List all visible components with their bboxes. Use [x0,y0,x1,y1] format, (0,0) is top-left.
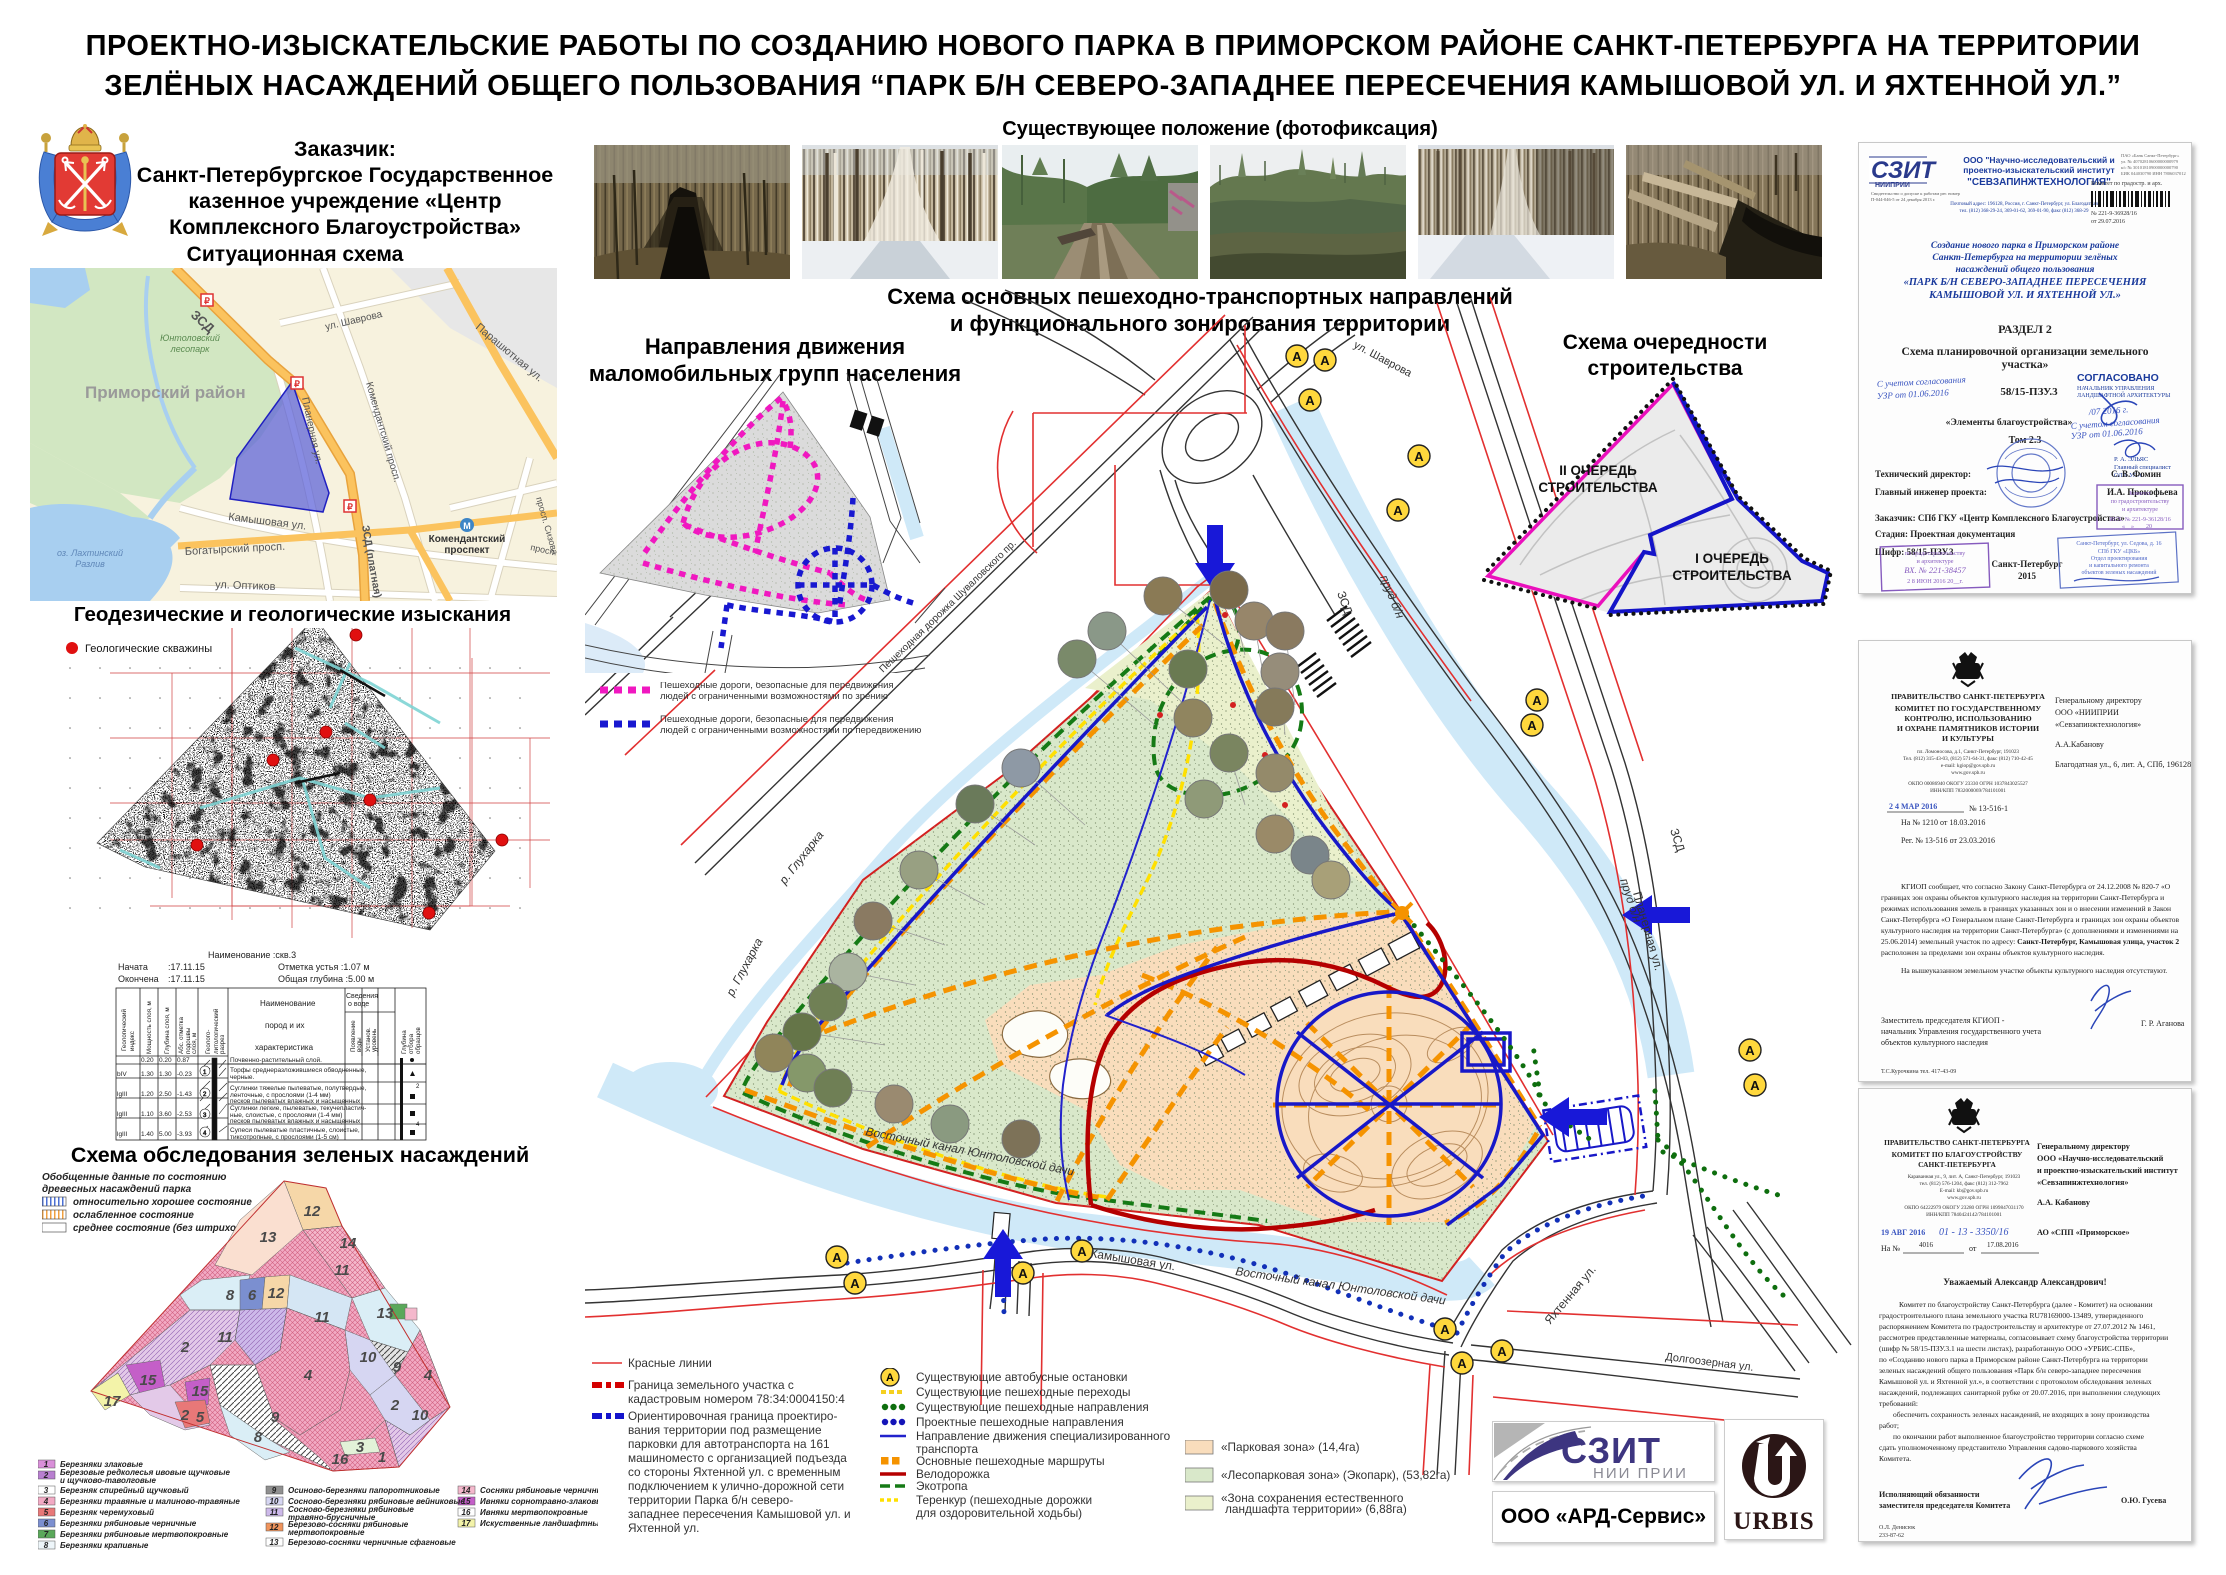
svg-text:А: А [832,1250,842,1265]
svg-text:Красные линии: Красные линии [628,1356,712,1370]
svg-text:А.А.Кабанову: А.А.Кабанову [2055,740,2105,749]
svg-text:А.А. Кабанову: А.А. Кабанову [2037,1198,2091,1207]
svg-text:9: 9 [393,1359,402,1376]
svg-text:Г. Р. Аганова: Г. Р. Аганова [2141,1019,2185,1028]
svg-text:Схема планировочной организаци: Схема планировочной организации земельно… [1902,346,2149,358]
svg-text:А: А [1457,1356,1467,1371]
svg-text:западнее пересечения Камышовой: западнее пересечения Камышовой ул. и [628,1507,851,1521]
svg-text:Санкт-Петербург, ул. Седова, д: Санкт-Петербург, ул. Седова, д. 16 [2076,540,2161,547]
svg-text:парковки для автотранспорта на: парковки для автотранспорта на 161 [628,1437,830,1451]
svg-text:А: А [1018,1266,1028,1281]
svg-text:Березняки рябиновые черничные: Березняки рябиновые черничные [60,1519,197,1528]
svg-text:«ПАРК Б/Н СЕВЕРО-ЗАПАДНЕЕ ПЕРЕ: «ПАРК Б/Н СЕВЕРО-ЗАПАДНЕЕ ПЕРЕСЕЧЕНИЯ [1904,277,2147,288]
svg-text:сдать уполномоченному представ: сдать уполномоченному представителю Упра… [1879,1443,2137,1452]
svg-text:и архитектуре: и архитектуре [1916,558,1953,565]
svg-text:На №: На № [1881,1244,1900,1253]
svg-text:проспект: проспект [444,545,489,556]
svg-text:8: 8 [254,1429,263,1446]
svg-text:пород и их: пород и их [265,1021,305,1030]
svg-text:Тел. (812) 315-43-03, (812) 57: Тел. (812) 315-43-03, (812) 571-64-31, ф… [1903,755,2033,762]
svg-text:заместителя председателя Комит: заместителя председателя Комитета [1879,1501,2010,1510]
svg-text:Проектные пешеходные направлен: Проектные пешеходные направления [916,1415,1124,1429]
svg-text:14: 14 [462,1486,471,1495]
svg-text:зеленых насаждений общего поль: зеленых насаждений общего пользования «П… [1879,1366,2142,1375]
svg-text:www.gov.spb.ru: www.gov.spb.ru [1947,1195,1981,1201]
svg-text:2: 2 [390,1397,400,1414]
svg-text:кадастровым номером 78:34:0004: кадастровым номером 78:34:0004150:4 [628,1392,845,1406]
svg-text:подключением к улично-дорожной: подключением к улично-дорожной сети [628,1479,844,1493]
svg-text:«Парковая зона» (14,4га): «Парковая зона» (14,4га) [1221,1440,1360,1454]
svg-text:Березняки травяные и малиново-: Березняки травяные и малиново-травяные [60,1497,240,1506]
svg-text:₽: ₽ [294,379,300,389]
svg-text:17: 17 [462,1519,471,1528]
svg-text:12: 12 [268,1285,285,1302]
svg-text:Существующие пешеходные перехо: Существующие пешеходные переходы [916,1385,1130,1399]
svg-text:Стадия: Проектная документаци: Стадия: Проектная документация [1875,529,2015,539]
svg-text:-1.43: -1.43 [177,1091,192,1098]
svg-text:13: 13 [270,1538,279,1547]
svg-text:к/с № 30101810900000000790: к/с № 30101810900000000790 [2121,165,2179,170]
svg-text:от: от [1969,1244,1977,1253]
svg-text:Супеси пылеватые пластичные, с: Супеси пылеватые пластичные, слоистые, [230,1127,360,1134]
svg-text:требований:: требований: [1879,1399,1918,1408]
svg-text:машиноместо с организацией под: машиноместо с организацией подъезда [628,1451,847,1465]
svg-text:01 - 13 - 3350/16: 01 - 13 - 3350/16 [1939,1227,2008,1238]
svg-text:6: 6 [44,1519,49,1528]
svg-text:Юнтоловский: Юнтоловский [160,333,220,343]
svg-text:Ивняки сорнотравно-злаковые: Ивняки сорнотравно-злаковые [480,1497,598,1506]
svg-text:Березово-сосняки черничные сфа: Березово-сосняки черничные сфагновые [288,1538,456,1547]
svg-text:и проектно-изыскательский инст: и проектно-изыскательский институт [2037,1166,2178,1175]
svg-text:E-mail: kb@gov.spb.ru: E-mail: kb@gov.spb.ru [1940,1188,1989,1194]
svg-text:Березняк черемуховый: Березняк черемуховый [60,1508,154,1517]
svg-text:по окончании работ выполненное: по окончании работ выполненное благоустр… [1893,1432,2145,1441]
svg-text:3.60: 3.60 [159,1111,172,1118]
svg-text:11: 11 [314,1309,330,1326]
svg-text:КОМИТЕТ ПО БЛАГОУСТРОЙСТВУ: КОМИТЕТ ПО БЛАГОУСТРОЙСТВУ [1892,1150,2023,1159]
svg-text::17.11.15: :17.11.15 [168,974,205,984]
svg-text:1.10: 1.10 [141,1111,154,1118]
svg-text:и архитектуре: и архитектуре [2122,507,2158,513]
svg-text:Мощность слоя, м: Мощность слоя, м [146,1001,153,1054]
svg-text:ИНН/КПП 7840424142/784101001: ИНН/КПП 7840424142/784101001 [1926,1212,2002,1218]
svg-text:0.20: 0.20 [141,1057,154,1064]
svg-text::17.11.15: :17.11.15 [168,962,205,972]
svg-text:Сведения: Сведения [346,993,378,1000]
svg-text:1: 1 [44,1460,49,1469]
svg-text:ИНН/КПП 7832000069/784101001: ИНН/КПП 7832000069/784101001 [1930,788,2006,794]
svg-text:Глубина слоя, м: Глубина слоя, м [164,1007,171,1054]
svg-text:4: 4 [423,1367,433,1384]
svg-text:Почтовый адрес: 196128, Россия: Почтовый адрес: 196128, Россия, г. Санкт… [1950,202,2098,207]
svg-text:Существующие автобусные остано: Существующие автобусные остановки [916,1370,1128,1384]
svg-text:Генеральному директору: Генеральному директору [2037,1142,2131,1151]
svg-text:Камышовой ул. и Яхтенной ул.»,: Камышовой ул. и Яхтенной ул.», в соответ… [1879,1377,2152,1386]
svg-text:индекс: индекс [129,1031,136,1051]
svg-text:11: 11 [217,1329,233,1346]
svg-text:НИИ ПРИИ: НИИ ПРИИ [1593,1465,1688,1481]
svg-text:и щучково-таволговые: и щучково-таволговые [60,1476,157,1485]
svg-text:На вышеуказанном земельном уча: На вышеуказанном земельном участке объек… [1901,966,2167,975]
svg-text:Ивняки мертвопокровные: Ивняки мертвопокровные [480,1508,588,1517]
svg-text:233-87-62: 233-87-62 [1879,1533,1904,1539]
svg-text:17: 17 [104,1393,121,1410]
svg-text:О.Ю. Гусева: О.Ю. Гусева [2121,1496,2166,1505]
svg-text:Комитет по градостр. и арх.: Комитет по градостр. и арх. [2091,181,2163,187]
svg-text:Пешеходные дороги, безопасные: Пешеходные дороги, безопасные для передв… [660,714,894,725]
svg-text:САНКТ-ПЕТЕРБУРГА: САНКТ-ПЕТЕРБУРГА [1918,1160,1996,1169]
svg-text:ОКПО 64222979 ОКОГУ 23280 ОГ: ОКПО 64222979 ОКОГУ 23280 ОГРН 109984703… [1904,1205,2024,1211]
svg-text:О.Л. Денисюк: О.Л. Денисюк [1879,1525,1915,1531]
svg-text:Геологические скважины: Геологические скважины [85,643,212,655]
svg-text:песков пылеватых влажных и нас: песков пылеватых влажных и насыщенных [230,1118,361,1125]
svg-text:www.gov.spb.ru: www.gov.spb.ru [1951,770,1985,776]
svg-text:Почвенно-растительный слой.: Почвенно-растительный слой. [230,1056,322,1064]
svg-text:15: 15 [140,1372,157,1389]
svg-text:вания территории под размещени: вания территории под размещение [628,1423,822,1437]
svg-text:2: 2 [180,1407,190,1424]
svg-text:2 8 ИЮН 2016 20__г.: 2 8 ИЮН 2016 20__г. [1907,578,1963,585]
svg-text:Свидетельство о допуске к рабо: Свидетельство о допуске к работам рег. н… [1871,191,1961,196]
svg-text:КОМИТЕТ ПО ГОСУДАРСТВЕННОМУ: КОМИТЕТ ПО ГОСУДАРСТВЕННОМУ [1895,704,2042,713]
svg-text:10: 10 [360,1349,377,1366]
svg-text:р. Глухарка: р. Глухарка [776,828,827,888]
svg-text:воды: воды [356,1037,363,1052]
svg-text:-3.93: -3.93 [177,1131,192,1138]
svg-text:«Севзапинжтехнология»: «Севзапинжтехнология» [2037,1178,2128,1187]
svg-text:₽: ₽ [204,296,210,306]
svg-text:распоряжением Комитета по град: распоряжением Комитета по градостроитель… [1879,1322,2155,1331]
svg-text:Ориентировочная граница проект: Ориентировочная граница проектиро- [628,1409,837,1423]
svg-text:КГИОП сообщает, что согласно З: КГИОП сообщает, что согласно Закону Санк… [1901,882,2171,891]
svg-text:«__» ___ 20__: «__» ___ 20__ [2122,524,2159,530]
svg-text:«Элементы благоустройства»: «Элементы благоустройства» [1946,417,2073,428]
svg-text:и капитального ремонта: и капитального ремонта [2089,563,2149,569]
svg-text:ИСХ. № 221-9-36128/16: ИСХ. № 221-9-36128/16 [2109,517,2170,523]
svg-text:Рег. № 13-516 от 23.03.2016: Рег. № 13-516 от 23.03.2016 [1901,836,1995,845]
svg-text:Главный инженер проекта:: Главный инженер проекта: [1875,487,1987,497]
svg-text:С. В. Фомин: С. В. Фомин [2111,469,2161,479]
svg-text:оз. Лахтинский: оз. Лахтинский [57,548,123,558]
svg-text:Создание нового парка в Примор: Создание нового парка в Приморском район… [1931,240,2120,251]
svg-text:Искуственные ландшафтные полян: Искуственные ландшафтные поляны [480,1519,598,1528]
svg-text:12: 12 [304,1203,321,1220]
svg-text:3: 3 [356,1439,365,1456]
svg-text:"СЕВЗАПИНЖТЕХНОЛОГИЯ": "СЕВЗАПИНЖТЕХНОЛОГИЯ" [1967,177,2111,188]
svg-text:Заказчик: СПб ГКУ «Центр Комп: Заказчик: СПб ГКУ «Центр Комплексного Бл… [1875,513,2125,523]
svg-text:мертвопокровные: мертвопокровные [288,1528,365,1537]
svg-text:Направление движения специализ: Направление движения специализированного [916,1429,1171,1443]
svg-text:Технический директор:: Технический директор: [1875,469,1971,479]
svg-text:Наименование: Наименование [260,999,316,1008]
svg-text:2: 2 [180,1339,190,1356]
svg-text:объектов зеленых насаждений: объектов зеленых насаждений [2082,569,2157,576]
svg-text:А: А [1745,1043,1755,1058]
svg-text:/07 2016 г.: /07 2016 г. [2087,404,2128,417]
svg-text:0.20: 0.20 [159,1057,172,1064]
svg-text:3: 3 [44,1486,49,1495]
svg-text:А: А [1292,349,1302,364]
svg-text:проектно-изыскательский инстит: проектно-изыскательский институт [1963,165,2114,175]
svg-text:11: 11 [270,1508,279,1517]
svg-text:2: 2 [43,1471,49,1480]
svg-text:2.50: 2.50 [159,1091,172,1098]
svg-text:СТРОИТЕЛЬСТВА: СТРОИТЕЛЬСТВА [1538,480,1658,495]
svg-text:АО «СПП «Приморское»: АО «СПП «Приморское» [2037,1228,2130,1237]
svg-text:А: А [1320,353,1330,368]
svg-text:Разлив: Разлив [75,559,105,569]
svg-text:Отдел проектирования: Отдел проектирования [2091,556,2148,562]
svg-text:Березняк спирейный щучковый: Березняк спирейный щучковый [60,1486,189,1495]
svg-text:режимах использования земель в: режимах использования земель в границах … [1881,904,2171,913]
svg-text:10: 10 [270,1497,279,1506]
svg-text:Абс. отметка: Абс. отметка [178,1017,185,1054]
svg-text:Граница земельного участка с: Граница земельного участка с [628,1378,794,1392]
svg-text:13: 13 [260,1229,277,1246]
svg-text:19 АВГ 2016: 19 АВГ 2016 [1881,1228,1925,1237]
svg-text:Пешеходные дороги, безопасные: Пешеходные дороги, безопасные для передв… [660,682,894,691]
svg-text:14: 14 [340,1235,357,1252]
svg-text:Существующие пешеходные направ: Существующие пешеходные направления [916,1400,1149,1414]
svg-text:А: А [1750,1078,1760,1093]
svg-text:Караванная ул., 9, лит. А, Сан: Караванная ул., 9, лит. А, Санкт-Петербу… [1908,1173,2021,1180]
svg-text:пл. Ломоносова, д.1, Санкт-Пет: пл. Ломоносова, д.1, Санкт-Петербург, 19… [1917,748,2019,755]
svg-text:5: 5 [44,1508,49,1517]
svg-text:территории Парка б/н северо-: территории Парка б/н северо- [628,1493,793,1507]
svg-text:от 29.07.2016: от 29.07.2016 [2091,219,2125,225]
svg-text:8: 8 [226,1287,235,1304]
svg-text:А: А [1305,393,1315,408]
svg-text:Санкт-Петербург: Санкт-Петербург [1992,559,2063,569]
svg-text:5.00: 5.00 [159,1131,172,1138]
svg-text:«Лесопарковая зона» (Экопарк),: «Лесопарковая зона» (Экопарк), (53,82га) [1221,1468,1450,1482]
svg-text:Основные пешеходные маршруты: Основные пешеходные маршруты [916,1454,1105,1468]
svg-text:4: 4 [416,1122,420,1128]
svg-text:А: А [1393,503,1403,518]
svg-text:по градостроительству: по градостроительству [2111,499,2170,505]
svg-text:РАЗДЕЛ 2: РАЗДЕЛ 2 [1998,322,2052,336]
svg-text:Сосняки рябиновые черничные: Сосняки рябиновые черничные [480,1486,598,1495]
svg-text:6: 6 [248,1287,257,1304]
svg-text:13: 13 [377,1305,394,1322]
svg-text:Глубина: Глубина [401,1030,408,1054]
svg-text:участка»: участка» [2002,359,2049,371]
svg-text:насаждений общего пользования: насаждений общего пользования [1956,264,2095,275]
svg-text:р. Глухарка: р. Глухарка [723,935,766,999]
svg-text:9: 9 [271,1409,280,1426]
svg-text:ООО «НИИПРИИ: ООО «НИИПРИИ [2055,708,2119,717]
svg-text:ПРАВИТЕЛЬСТВО САНКТ-ПЕТЕРБУРГА: ПРАВИТЕЛЬСТВО САНКТ-ПЕТЕРБУРГА [1884,1138,2030,1147]
svg-text:Геологический: Геологический [121,1009,128,1051]
svg-text:17.08.2016: 17.08.2016 [1987,1241,2019,1249]
svg-text:А: А [1077,1244,1087,1259]
svg-text:25.06.2014) земельный участок: 25.06.2014) земельный участок по адресу:… [1881,937,2179,946]
svg-text:lgIII: lgIII [117,1111,128,1118]
svg-text:Окончена: Окончена [118,974,159,984]
svg-text:И ОХРАНЕ ПАМЯТНИКОВ ИСТОРИИ: И ОХРАНЕ ПАМЯТНИКОВ ИСТОРИИ [1897,724,2039,733]
svg-text:по градостроительству: по градостроительству [1905,550,1966,557]
svg-text:лесопарк: лесопарк [170,344,210,354]
svg-text:5: 5 [196,1409,205,1426]
svg-text:разрез: разрез [219,1035,226,1054]
svg-text:НАЧАЛЬНИК УПРАВЛЕНИЯ: НАЧАЛЬНИК УПРАВЛЕНИЯ [2077,386,2154,392]
svg-text:Комитета.: Комитета. [1879,1454,1911,1463]
svg-text:lgIII: lgIII [117,1131,128,1138]
svg-text:тиксотропные, с прослоями (1-5: тиксотропные, с прослоями (1-5 см) [230,1134,339,1141]
svg-text:ландшафта территории» (6,88га): ландшафта территории» (6,88га) [1225,1502,1407,1516]
svg-text:песков пылеватых влажных и нас: песков пылеватых влажных и насыщенных [230,1098,361,1105]
svg-text:12: 12 [270,1523,279,1532]
svg-text:«Севзапинжтехнология»: «Севзапинжтехнология» [2055,720,2141,729]
svg-text:А: А [1527,718,1537,733]
svg-text:Яхтенной ул.: Яхтенной ул. [628,1521,699,1535]
svg-text:людей с ограниченными возможно: людей с ограниченными возможностями по з… [660,691,888,702]
svg-text:II ОЧЕРЕДЬ: II ОЧЕРЕДЬ [1559,463,1637,478]
svg-text:А: А [1414,449,1424,464]
svg-text:Суглинки тяжелые пылеватые, по: Суглинки тяжелые пылеватые, полутвердые, [230,1085,366,1092]
svg-text:БИК 044030790 ИНН 7806037012: БИК 044030790 ИНН 7806037012 [2121,171,2186,176]
svg-text:ПРАВИТЕЛЬСТВО САНКТ-ПЕТЕРБУРГА: ПРАВИТЕЛЬСТВО САНКТ-ПЕТЕРБУРГА [1891,692,2045,701]
svg-text:-0.23: -0.23 [177,1071,192,1078]
svg-text:Геолого-: Геолого- [205,1030,212,1054]
svg-text:со стороны Яхтенной ул. с врем: со стороны Яхтенной ул. с временным [628,1465,841,1479]
svg-text:Уважаемый Александр Александро: Уважаемый Александр Александрович! [1943,1277,2106,1287]
svg-text:2015: 2015 [2018,571,2037,581]
svg-text:I ОЧЕРЕДЬ: I ОЧЕРЕДЬ [1695,551,1769,566]
svg-text:отбора: отбора [408,1033,415,1054]
svg-text:объектов культурного наследия: объектов культурного наследия [1881,1038,1988,1047]
svg-text:Санкт-Петербурга «О Генерально: Санкт-Петербурга «О Генеральном плане Са… [1881,915,2179,924]
svg-text:№ 221-9-36928/16: № 221-9-36928/16 [2091,211,2137,217]
svg-text:А: А [886,1372,894,1384]
svg-text:4: 4 [303,1367,313,1384]
svg-text:КАМЫШОВОЙ УЛ. И ЯХТЕННОЙ УЛ.»: КАМЫШОВОЙ УЛ. И ЯХТЕННОЙ УЛ.» [1928,289,2121,301]
svg-text:2: 2 [416,1084,420,1090]
svg-text:Комитет: Комитет [2129,491,2151,497]
svg-text:4: 4 [43,1497,49,1506]
svg-text:ООО «Научно-исследовательский: ООО «Научно-исследовательский [2037,1154,2164,1163]
svg-text:Отметка устья :1.07 м: Отметка устья :1.07 м [278,962,370,972]
svg-text:ул. № 40702810600000000979: ул. № 40702810600000000979 [2121,159,2179,164]
svg-text:черные.: черные. [230,1074,254,1081]
svg-text:bIV: bIV [117,1071,127,1078]
svg-text:людей с ограниченными возможно: людей с ограниченными возможностями по п… [660,725,921,736]
svg-text:-2.53: -2.53 [177,1111,192,1118]
svg-text:8: 8 [44,1541,49,1550]
svg-text:уровень: уровень [371,1029,378,1052]
svg-text:1.30: 1.30 [159,1071,172,1078]
svg-text:слоя, м: слоя, м [191,1033,198,1054]
svg-text:1.30: 1.30 [141,1071,154,1078]
svg-text:А: А [1497,1344,1507,1359]
svg-text:тел. (812) 576-1204, факс (812: тел. (812) 576-1204, факс (812) 312-7962 [1920,1180,2009,1187]
svg-text:расположен за пределами зон ох: расположен за пределами зон охраны объек… [1881,948,2105,957]
svg-text:Общая глубина :5.00 м: Общая глубина :5.00 м [278,974,374,984]
svg-text:ВХ. № 221-38457: ВХ. № 221-38457 [1904,565,1966,575]
svg-text:А: А [1440,1322,1450,1337]
svg-text:Приморский район: Приморский район [85,383,246,402]
svg-text:ЛАНДШАФТНОЙ АРХИТЕКТУРЫ: ЛАНДШАФТНОЙ АРХИТЕКТУРЫ [2077,391,2171,399]
svg-text:Комендантский: Комендантский [429,534,506,545]
svg-text:1.20: 1.20 [141,1091,154,1098]
svg-text:начальник Управления государст: начальник Управления государственного уч… [1881,1027,2041,1036]
svg-text:ул. Шаврова: ул. Шаврова [1352,339,1415,380]
svg-text:58/15-ПЗУ.3: 58/15-ПЗУ.3 [2000,386,2058,398]
svg-text:Наименование :скв.3: Наименование :скв.3 [208,950,296,960]
svg-text:4016: 4016 [1919,1241,1934,1249]
svg-text:₽: ₽ [347,502,353,512]
svg-text:Р. А. ЭЛЬЯС: Р. А. ЭЛЬЯС [2114,456,2148,463]
svg-text:А: А [1532,693,1542,708]
svg-text:16: 16 [462,1508,471,1517]
svg-text:обеспечить сохранность зеленых: обеспечить сохранность зеленых насаждени… [1893,1410,2150,1419]
svg-text:насаждений, подлежащих санитар: насаждений, подлежащих санитарной рубке … [1879,1388,2161,1397]
svg-text:образцов: образцов [415,1026,422,1054]
svg-text:работ;: работ; [1879,1421,1899,1430]
svg-text:1.40: 1.40 [141,1131,154,1138]
svg-text:Торфы среднеразложившиеся обво: Торфы среднеразложившиеся обводненные, [230,1066,366,1074]
svg-text:2 4 МАР 2016: 2 4 МАР 2016 [1889,802,1937,811]
svg-text:рассмотрев представленные мате: рассмотрев представленные материалы, сог… [1879,1333,2168,1342]
svg-text:ул. Оптиков: ул. Оптиков [215,579,276,593]
svg-text:характеристика: характеристика [255,1043,314,1052]
svg-text:границах зон охраны объектов к: границах зон охраны объектов культурного… [1881,893,2164,902]
svg-text:Санкт-Петербурга на территории: Санкт-Петербурга на территории зелёных [1932,252,2117,263]
svg-text:по «Созданию нового парка в Пр: по «Созданию нового парка в Приморском р… [1879,1355,2148,1364]
svg-text:СПб ГКУ «ЦКБ»: СПб ГКУ «ЦКБ» [2098,548,2140,555]
svg-text:e-mail: kgiop@gov.spb.ru: e-mail: kgiop@gov.spb.ru [1941,763,1996,769]
svg-text:(шифр № 58/15-ПЗУ.3.1 на шести: (шифр № 58/15-ПЗУ.3.1 на шести листах), … [1879,1344,2135,1353]
svg-text:С учетом согласования: С учетом согласования [1877,374,1966,389]
svg-text:М: М [463,521,471,531]
svg-text:15: 15 [192,1383,209,1400]
svg-text:КОНТРОЛЮ, ИСПОЛЬЗОВАНИЮ: КОНТРОЛЮ, ИСПОЛЬЗОВАНИЮ [1904,714,2031,723]
svg-text:Благодатная ул., 6, лит. А, СП: Благодатная ул., 6, лит. А, СПб, 196128 [2055,760,2191,769]
svg-text:УЗР от 01.06.2016: УЗР от 01.06.2016 [1877,387,1950,401]
svg-text:культурного наследия на террит: культурного наследия на территории Санкт… [1881,926,2179,935]
svg-text:градостроительного плана зем: градостроительного плана земельного учас… [1879,1311,2143,1320]
svg-text:А: А [850,1276,860,1291]
svg-text:0.87: 0.87 [177,1057,190,1064]
svg-text:10: 10 [412,1407,429,1424]
svg-text:Генеральному директору: Генеральному директору [2055,696,2143,705]
svg-text:Березняки рябиновые мертвопокр: Березняки рябиновые мертвопокровные [60,1530,229,1539]
svg-text:lgIII: lgIII [117,1091,128,1098]
svg-text:На № 1210 от 18.03.2016: На № 1210 от 18.03.2016 [1901,818,1985,827]
svg-text:Заместитель председателя КГИОП: Заместитель председателя КГИОП - [1881,1016,2005,1025]
svg-text:Теренкур (пешеходные дорожки: Теренкур (пешеходные дорожки [916,1493,1092,1507]
svg-text:И КУЛЬТУРЫ: И КУЛЬТУРЫ [1942,734,1994,743]
svg-text:Комитет по благоустройству Сан: Комитет по благоустройству Санкт-Петербу… [1899,1300,2153,1309]
svg-text:П-044-046-5 от 24 декабря 2013: П-044-046-5 от 24 декабря 2013 г. [1871,197,1935,202]
svg-text:URBIS: URBIS [1733,1508,1814,1535]
svg-text:ООО "Научно-исследовательский: ООО "Научно-исследовательский и [1963,155,2115,165]
svg-text:Суглинки легкие, пылеватые, те: Суглинки легкие, пылеватые, текучепласти… [230,1105,366,1112]
svg-text:Экотропа: Экотропа [916,1479,968,1493]
svg-text:Исполняющий обязанности: Исполняющий обязанности [1879,1490,1980,1499]
svg-text:ЗСД: ЗСД [1667,827,1688,854]
svg-text:Яхтенная ул.: Яхтенная ул. [1542,1262,1599,1326]
svg-text:ОКПО 00086940 ОКОГУ 23330 ОГ: ОКПО 00086940 ОКОГУ 23330 ОГРН 103784302… [1908,781,2028,787]
svg-text:ПАО «Банк Санкт-Петербург»: ПАО «Банк Санкт-Петербург» [2121,153,2179,158]
svg-text:о воде: о воде [348,1001,369,1008]
svg-text:СТРОИТЕЛЬСТВА: СТРОИТЕЛЬСТВА [1672,568,1792,583]
svg-text:7: 7 [44,1530,49,1539]
svg-text:9: 9 [272,1486,277,1495]
svg-text:для оздоровительной ходьбы): для оздоровительной ходьбы) [916,1506,1082,1520]
svg-text:№ 13-516-1: № 13-516-1 [1969,804,2008,813]
svg-text:тел. (812) 368-29-24, 369-01-6: тел. (812) 368-29-24, 369-01-62, 369-01-… [1960,209,2089,214]
